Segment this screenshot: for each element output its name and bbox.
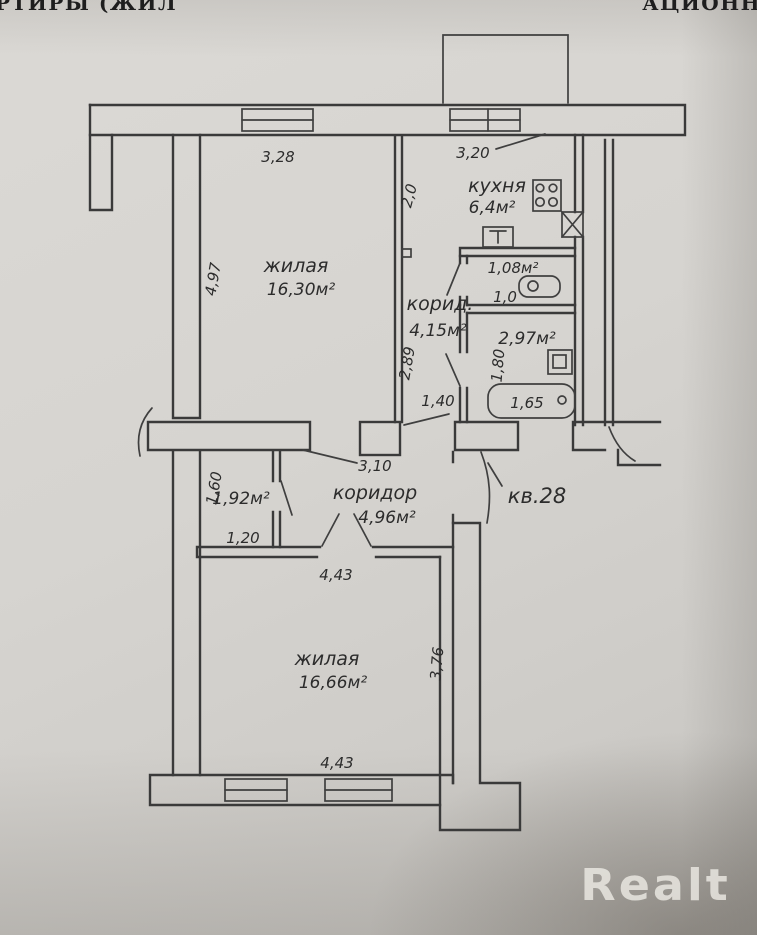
apartment-number-label: кв.28 [508,484,566,508]
room-bathroom-area: 2,97м² [498,329,556,349]
room-living2-name: жилая [294,648,360,670]
dim-living2-width-top: 4,43 [319,566,352,584]
balcony-outline [443,35,568,103]
dim-tub-length: 1,65 [510,394,543,412]
dim-living1-width: 3,28 [261,148,294,166]
room-hall-small-name: корид. [407,293,474,315]
window-living2-right [325,779,392,801]
dim-kitchen-width: 3,20 [456,144,489,162]
bathroom-door-leaf [446,354,460,386]
room-living2-area: 16,66м² [299,673,367,693]
dim-living2-depth: 3,76 [427,646,448,681]
stove-icon [533,180,561,211]
realt-watermark-logo: Realt [563,859,748,910]
room-hall-small-area: 4,15м² [409,321,467,341]
kitchen-sink-icon [483,227,513,247]
room-wc-area: 1,08м² [488,259,539,277]
dim-living2-width-bottom: 4,43 [320,754,353,772]
dim-wc-depth: 1,0 [493,288,517,306]
room-kitchen-area: 6,4м² [469,198,516,218]
scanned-floor-plan-page: РТИРЫ (ЖИЛ АЦИОНН [0,0,757,935]
room-living1-area: 16,30м² [267,280,335,300]
bath-sink-icon [548,350,572,374]
wall-pillar [360,422,400,455]
window-kitchen-top [450,109,520,131]
window-living2-left [225,779,287,801]
dim-opening: 1,40 [421,392,454,410]
toilet-icon [519,276,560,297]
window-living1-top [242,109,313,131]
dim-living1-depth: 4,97 [201,261,225,297]
closet-door-leaf [281,481,292,515]
room-living1-name: жилая [263,255,329,277]
dim-bath-depth: 1,80 [488,348,509,383]
room-hall-main-area: 4,96м² [358,508,416,528]
wc-door-leaf [447,263,460,295]
room-hall-main-name: коридор [333,482,417,504]
dim-hall-wall: 2,89 [395,345,419,381]
dim-hall-width: 3,10 [358,457,391,475]
floor-plan-drawing: 3,28 3,20 2,0 4,97 жилая 16,30м² кухня 6… [0,0,757,935]
dim-closet-width: 1,20 [226,529,259,547]
room-kitchen-name: кухня [468,175,526,197]
stairwell-door-arc [609,427,635,461]
vent-shaft-icon [562,212,583,237]
